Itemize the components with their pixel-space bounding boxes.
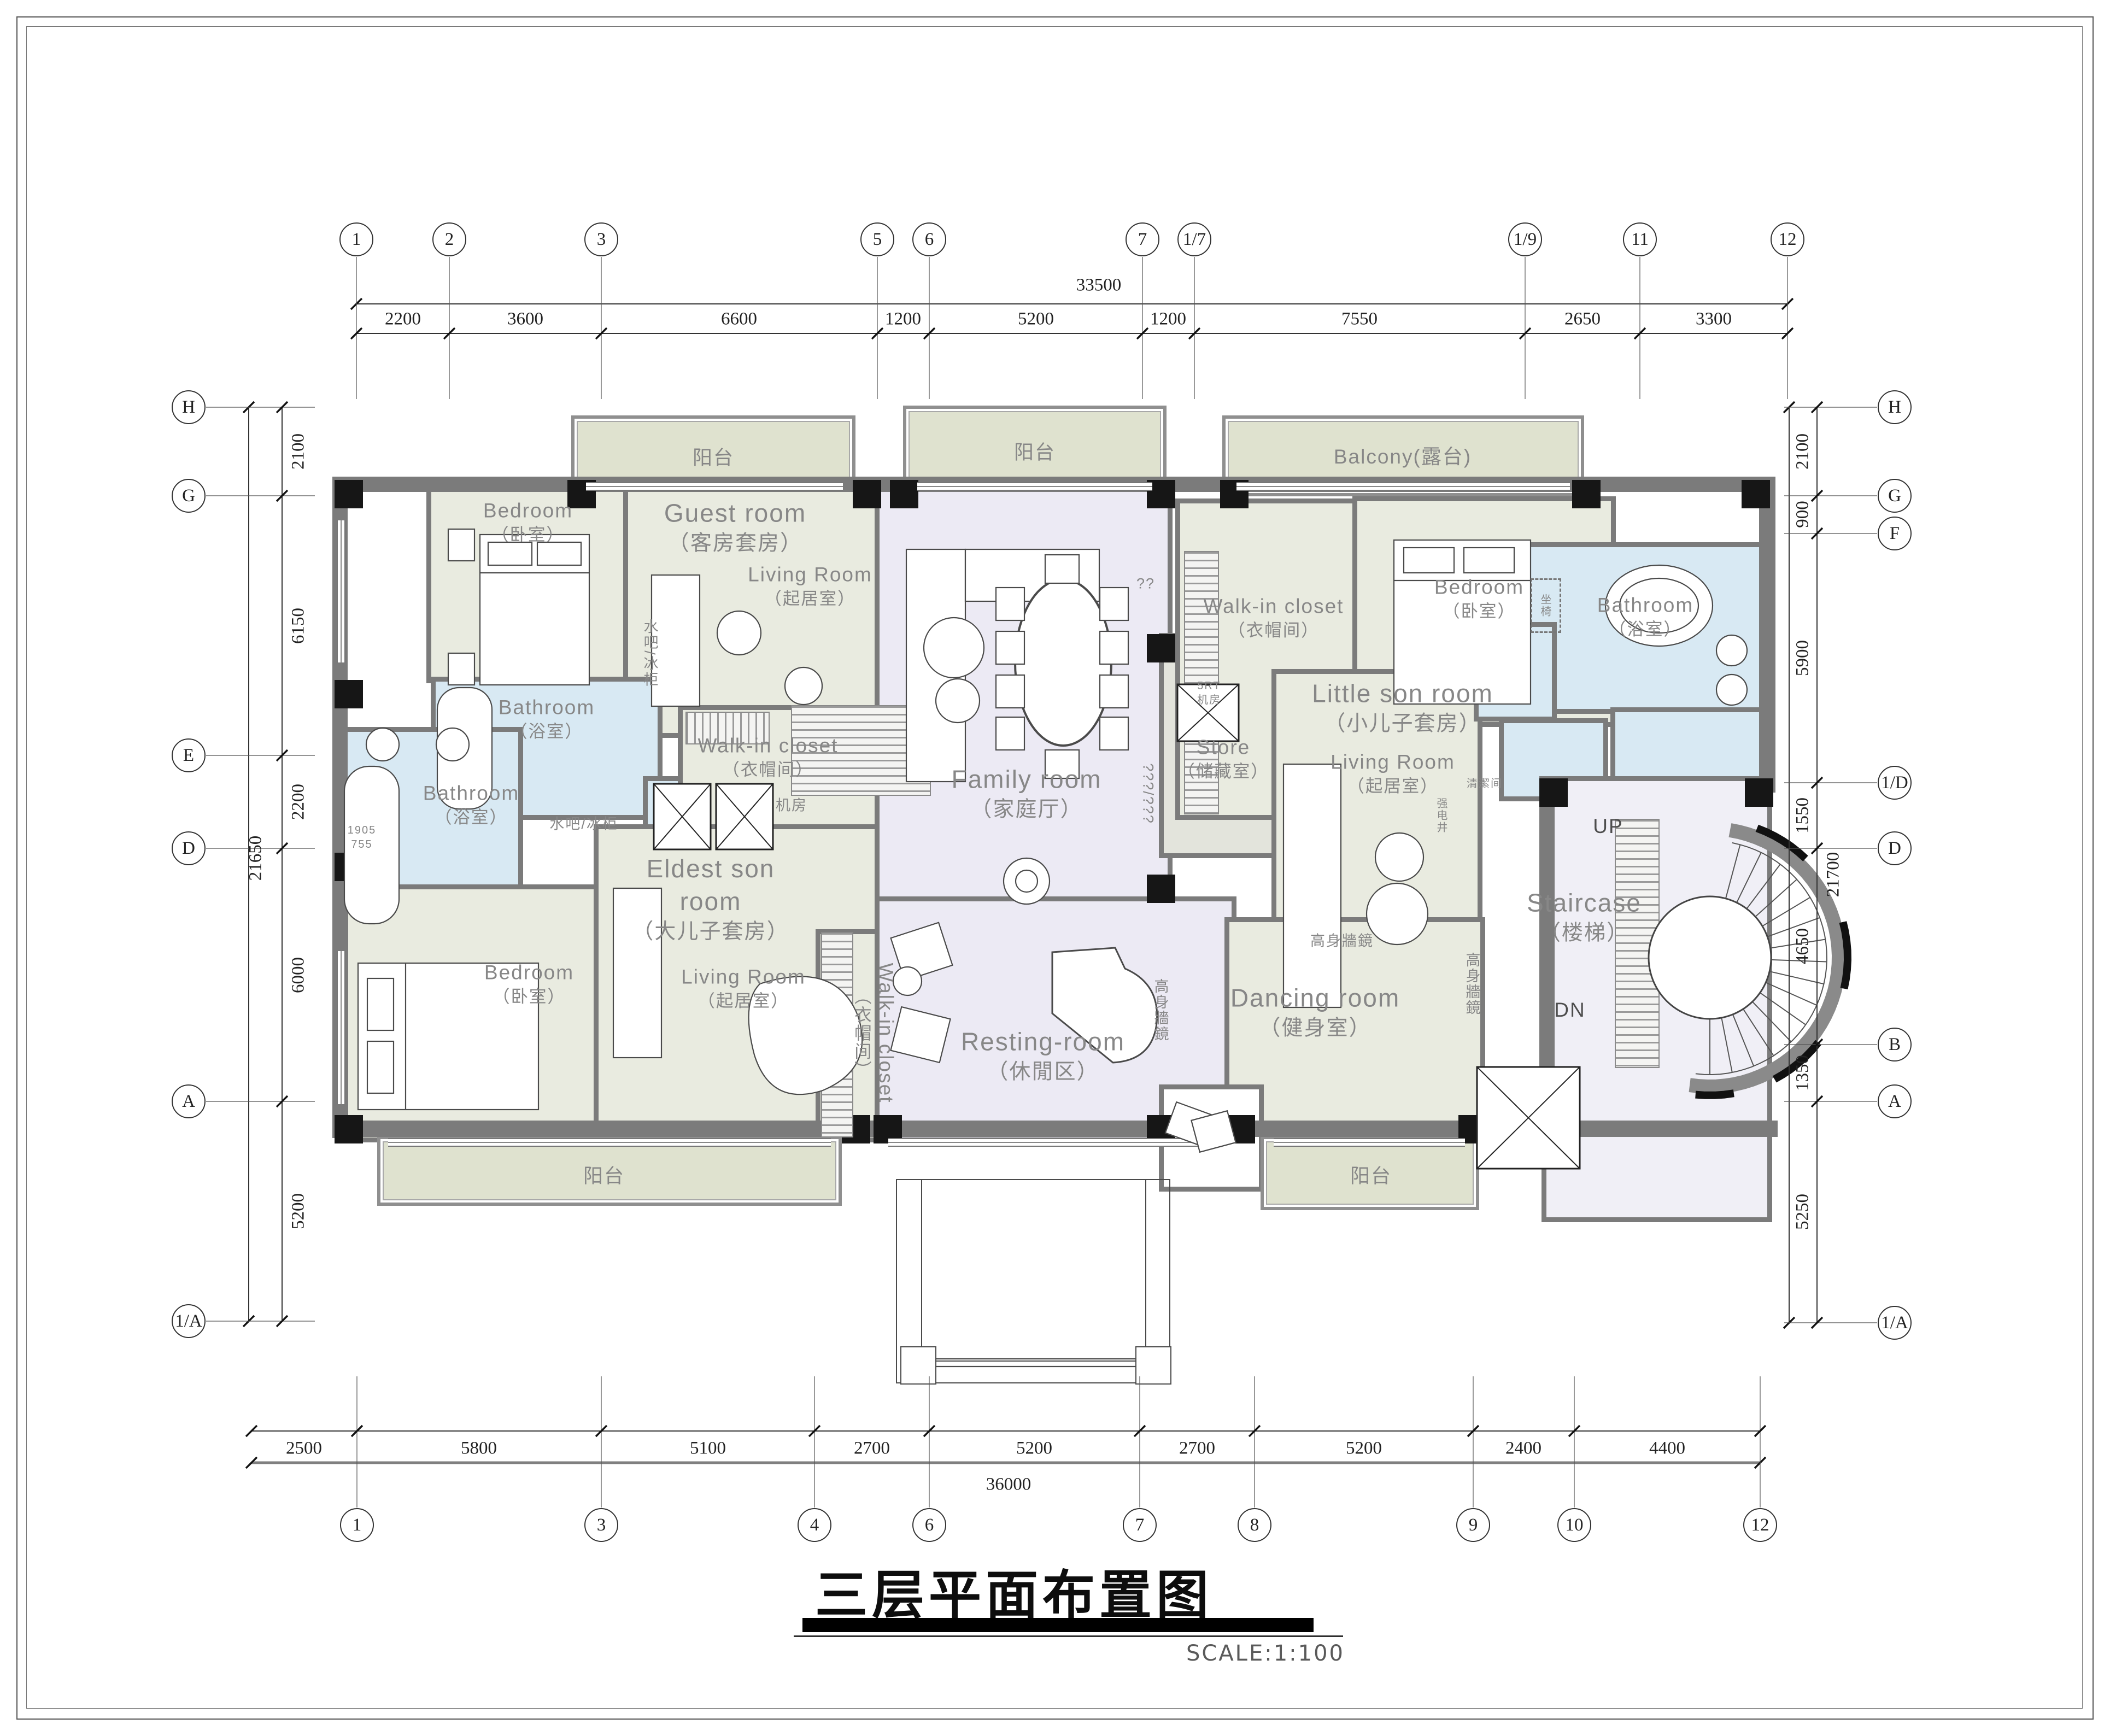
room-label: Bedroom（卧室）	[484, 960, 574, 1008]
floor-plan-sheet: 三层平面布置图 SCALE:1:100 阳台阳台Balcony(露台)Bedro…	[0, 0, 2110, 1736]
room-label: 清潔间	[1467, 777, 1503, 791]
dimension-text: 2400	[1505, 1439, 1542, 1459]
room-label: Walk-in closet（衣帽间）	[851, 963, 899, 1104]
dimension-text: 4400	[1649, 1439, 1685, 1459]
dimension-text: 5200	[1018, 309, 1054, 330]
room-label: 阳台	[583, 1164, 625, 1189]
room-label: Little son room（小儿子套房）	[1312, 678, 1493, 738]
room-label: 1905755	[348, 823, 377, 852]
dimension-text: 5250	[1793, 1194, 1813, 1230]
room-label: 机房	[776, 796, 807, 815]
grid-bubble: 3	[584, 1508, 618, 1542]
grid-bubble: 7	[1123, 1508, 1157, 1542]
grid-bubble: H	[1878, 390, 1912, 424]
room-label: Walk-in closet（衣帽间）	[1204, 594, 1344, 642]
room-label: Resting-room（休閒区）	[961, 1026, 1125, 1087]
room-label: 阳台	[1014, 440, 1056, 466]
grid-bubble: A	[172, 1084, 206, 1118]
dimension-text: 1200	[885, 309, 921, 330]
grid-bubble: 1/9	[1508, 222, 1542, 256]
dimension-text: 2100	[289, 433, 309, 470]
dimension-text: 7550	[1341, 309, 1378, 330]
grid-bubble: G	[1878, 479, 1912, 513]
room-label: Guest room（客房套房）	[664, 497, 806, 558]
dimension-text: 3300	[1696, 309, 1732, 330]
grid-bubble: 1/A	[1878, 1306, 1912, 1340]
room-label: Living Room（起居室）	[1331, 749, 1455, 798]
room-label: Bedroom（卧室）	[1434, 574, 1524, 623]
dimension-text: 2200	[289, 784, 309, 820]
room-label: Eldest sonroom（大儿子套房）	[632, 853, 789, 946]
grid-bubble: 1/D	[1878, 766, 1912, 800]
room-label: Living Room（起居室）	[681, 964, 806, 1013]
room-label: UP	[1593, 813, 1623, 840]
room-label: ???/???	[1138, 763, 1157, 824]
dimension-text: 1550	[1793, 797, 1813, 834]
grid-bubble: E	[172, 738, 206, 772]
room-label: 5RT机房	[1197, 679, 1221, 707]
room-label: Walk-in closet（衣帽间）	[698, 733, 839, 782]
dimension-text: 6600	[721, 309, 757, 330]
dimension-text: 5800	[461, 1439, 497, 1459]
dimension-text: 6000	[289, 957, 309, 993]
dimension-text: 2500	[286, 1439, 322, 1459]
grid-bubble: F	[1878, 517, 1912, 550]
room-label: 高身牆鏡	[1462, 952, 1481, 1016]
room-label: 强电井	[1434, 797, 1448, 834]
room-label: Bedroom（卧室）	[483, 498, 573, 547]
dimension-text: 1200	[1150, 309, 1186, 330]
room-label: Living Room（起居室）	[748, 562, 872, 611]
title-underline-thin	[794, 1635, 1343, 1637]
room-label: Family room（家庭厅）	[951, 764, 1101, 824]
grid-bubble: 2	[432, 222, 466, 256]
room-label: 高身牆鏡	[1150, 978, 1169, 1042]
grid-bubble: 12	[1743, 1508, 1777, 1542]
room-label: Store（储藏室）	[1177, 735, 1269, 783]
grid-bubble: 1/A	[172, 1304, 206, 1338]
dimension-text: 5200	[289, 1193, 309, 1229]
room-label: 坐椅	[1538, 594, 1552, 618]
grid-bubble: 1	[339, 222, 373, 256]
dimension-text: 4650	[1793, 928, 1813, 964]
grid-bubble: 7	[1126, 222, 1159, 256]
dimension-text: 2650	[1564, 309, 1601, 330]
dimension-text: 21650	[246, 836, 266, 881]
room-label: 水吧/冰柜	[640, 619, 659, 688]
room-label: Bathroom（浴室）	[423, 781, 519, 829]
drawing-title: 三层平面布置图	[815, 1553, 1213, 1629]
grid-bubble: 12	[1771, 222, 1804, 256]
grid-bubble: A	[1878, 1084, 1912, 1118]
grid-bubble: 1/7	[1177, 222, 1211, 256]
grid-bubble: 5	[860, 222, 894, 256]
grid-bubble: 3	[584, 222, 618, 256]
grid-bubble: G	[172, 479, 206, 513]
dimension-text: 1350	[1793, 1055, 1813, 1091]
room-label: 阳台	[1350, 1164, 1392, 1189]
dimension-text: 2100	[1793, 433, 1813, 470]
room-label: Bathroom（浴室）	[1597, 593, 1693, 641]
dimension-text: 2700	[1179, 1439, 1215, 1459]
room-label: 高身牆鏡	[1310, 931, 1374, 951]
dimension-text: 36000	[986, 1475, 1031, 1495]
room-label: 阳台	[693, 445, 734, 471]
grid-bubble: 11	[1623, 222, 1657, 256]
grid-bubble: 9	[1456, 1508, 1490, 1542]
grid-bubble: 8	[1238, 1508, 1271, 1542]
grid-bubble: D	[172, 831, 206, 865]
dimension-text: 5200	[1346, 1439, 1382, 1459]
room-label: Balcony(露台)	[1334, 444, 1472, 470]
dimension-layer	[0, 0, 2110, 1736]
grid-bubble: B	[1878, 1028, 1912, 1061]
dimension-text: 3600	[507, 309, 543, 330]
dimension-text: 5200	[1016, 1439, 1052, 1459]
dimension-text: 6150	[289, 608, 309, 644]
grid-bubble: 10	[1557, 1508, 1591, 1542]
room-label: DN	[1554, 997, 1585, 1023]
room-label: 水吧/冰柜	[549, 814, 618, 834]
grid-bubble: H	[172, 390, 206, 424]
dimension-text: 2200	[385, 309, 421, 330]
grid-bubble: 6	[912, 222, 946, 256]
grid-bubble: D	[1878, 831, 1912, 865]
grid-bubble: 6	[912, 1508, 946, 1542]
room-label: Bathroom（浴室）	[499, 695, 595, 743]
dimension-text: 5100	[690, 1439, 726, 1459]
dimension-text: 33500	[1076, 275, 1122, 296]
dimension-text: 2700	[854, 1439, 890, 1459]
grid-bubble: 4	[798, 1508, 831, 1542]
room-label: ??	[1136, 574, 1155, 593]
grid-bubble: 1	[340, 1508, 374, 1542]
dimension-text: 21700	[1824, 852, 1844, 898]
room-label: Dancing room（健身室）	[1230, 982, 1400, 1043]
room-label: Staircase（楼梯）	[1527, 887, 1642, 948]
scale-label: SCALE:1:100	[1186, 1641, 1345, 1666]
title-underline-bar	[802, 1618, 1314, 1632]
dimension-text: 5900	[1793, 640, 1813, 676]
dimension-text: 900	[1793, 501, 1813, 528]
